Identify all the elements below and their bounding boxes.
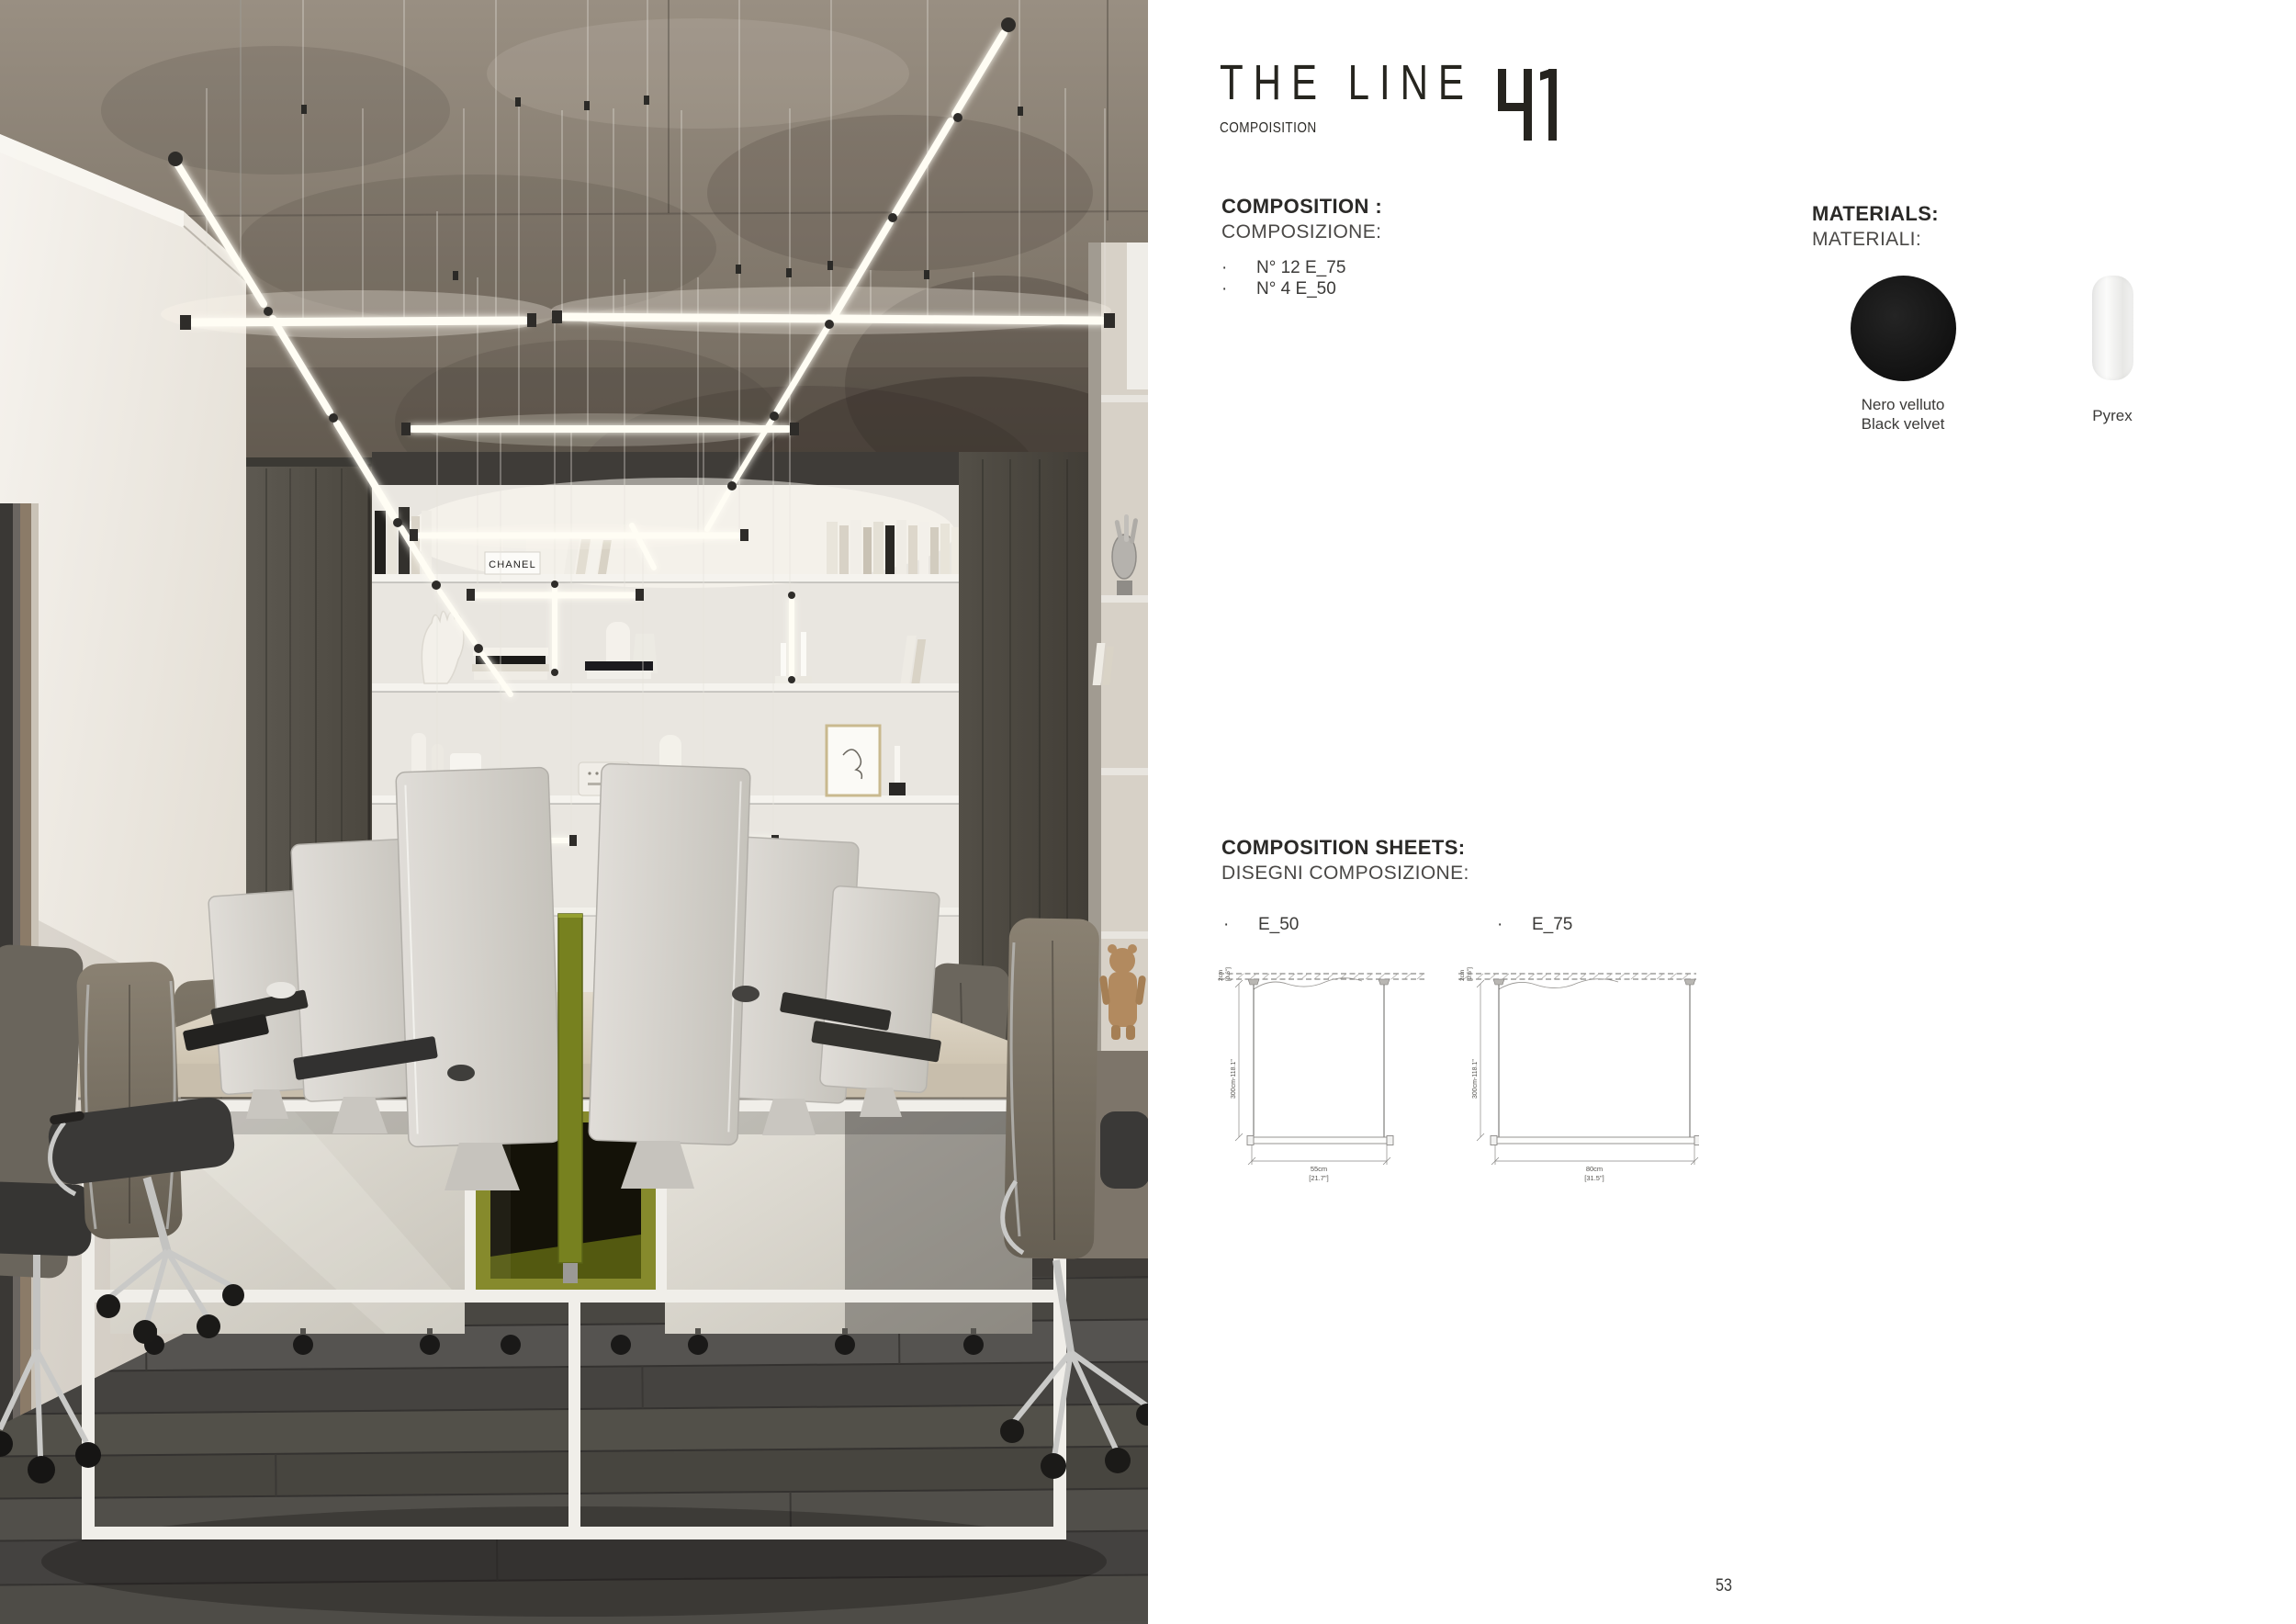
swatch-pyrex: Pyrex	[2058, 276, 2167, 434]
chanel-book-label: CHANEL	[489, 559, 536, 570]
materials-heading-en: MATERIALS:	[1812, 202, 1939, 226]
sheet-item-e75: · E_75	[1497, 915, 1572, 935]
width-dimension-label: 80cm	[1586, 1165, 1603, 1173]
svg-text:2cm: 2cm	[1218, 970, 1224, 981]
swatch-label: Nero velluto Black velvet	[1812, 395, 1994, 434]
green-desk-divider	[558, 914, 582, 1283]
numeral-one-glyph	[1539, 69, 1561, 141]
catalog-page: CHANEL	[0, 0, 2296, 1624]
sheets-heading-it: DISEGNI COMPOSIZIONE:	[1221, 862, 1469, 885]
composition-section: COMPOSITION : COMPOSIZIONE: · N° 12 E_75…	[1221, 195, 1382, 299]
composition-item: · N° 12 E_75	[1221, 257, 1382, 278]
brand-subtitle: COMPOISITION	[1220, 120, 1510, 137]
width-dimension-label: 55cm	[1311, 1165, 1327, 1173]
swatch-label: Pyrex	[2058, 406, 2167, 425]
sheet-item-e50: · E_50	[1223, 915, 1299, 935]
width-dimension-inches: [21.7"]	[1309, 1174, 1328, 1182]
material-swatches: Nero velluto Black velvet Pyrex	[1812, 276, 2167, 434]
sheets-heading-en: COMPOSITION SHEETS:	[1221, 836, 1469, 860]
swatch-black-velvet: Nero velluto Black velvet	[1812, 276, 1994, 434]
brand-lockup: THE LINE 41 COMPOISITION	[1220, 55, 1561, 137]
page-number: 53	[1716, 1576, 1732, 1596]
composition-heading-en: COMPOSITION :	[1221, 195, 1382, 219]
catalog-content: THE LINE 41 COMPOISITION COMPOSITION : C…	[1148, 0, 2296, 1624]
display-column-right	[1088, 242, 1148, 1051]
ceiling-gap-label: 2cm [0.6"]	[1218, 967, 1232, 981]
interior-photo: CHANEL	[0, 0, 1148, 1624]
svg-text:2cm: 2cm	[1459, 970, 1466, 981]
pyrex-swatch-cylinder	[2092, 276, 2133, 380]
interior-photo-art: CHANEL	[0, 0, 1148, 1624]
ceiling-gap-label: 2cm [0.6"]	[1459, 967, 1473, 981]
sheets-section: COMPOSITION SHEETS: DISEGNI COMPOSIZIONE…	[1221, 836, 1469, 885]
technical-drawing-e50: 2cm [0.6"] 300cm-118.1" 55cm [21.7"]	[1217, 946, 1428, 1187]
materials-heading-it: MATERIALI:	[1812, 228, 1939, 252]
black-velvet-swatch-circle	[1851, 276, 1956, 381]
brand-title: THE LINE	[1220, 55, 1474, 110]
composition-item: · N° 4 E_50	[1221, 278, 1382, 299]
technical-drawing-e75: 2cm [0.6"] 300cm-118.1" 80cm [31.5"]	[1458, 946, 1699, 1187]
drop-dimension-label: 300cm-118.1"	[1472, 1059, 1479, 1099]
materials-section: MATERIALS: MATERIALI:	[1812, 202, 1939, 252]
width-dimension-inches: [31.5"]	[1584, 1174, 1604, 1182]
svg-text:[0.6"]: [0.6"]	[1467, 967, 1473, 981]
composition-heading-it: COMPOSIZIONE:	[1221, 220, 1382, 244]
svg-text:[0.6"]: [0.6"]	[1225, 967, 1232, 981]
drop-dimension-label: 300cm-118.1"	[1231, 1059, 1237, 1099]
